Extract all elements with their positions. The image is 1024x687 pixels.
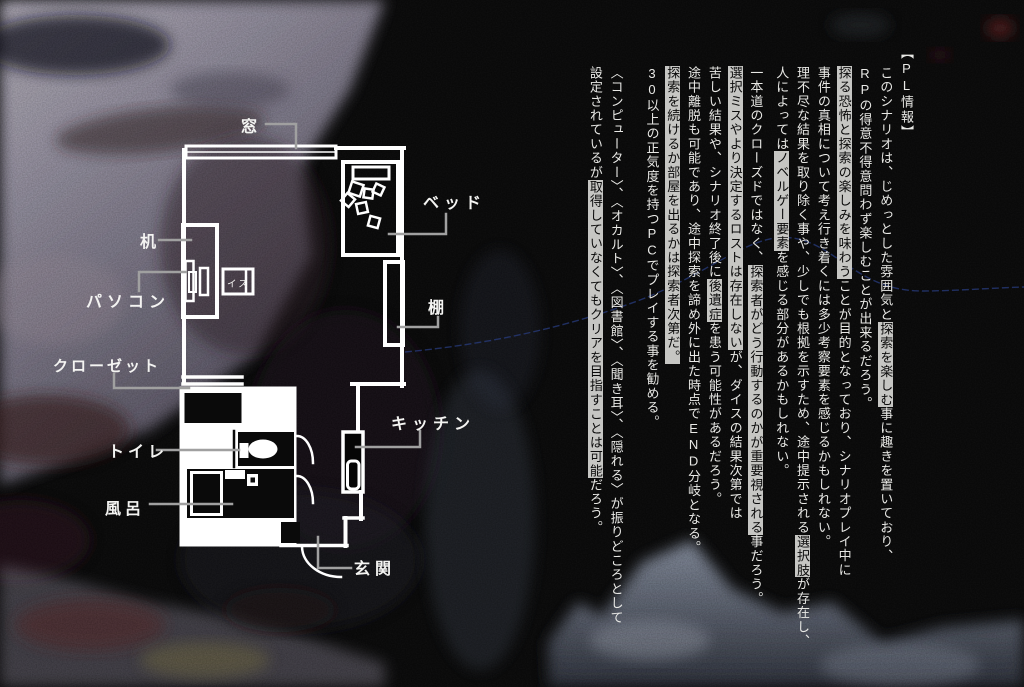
- pl-paragraph: 【PL情報】このシナリオは、じめっとした雰囲気と探索を楽しむ事に趣きを置いており…: [770, 46, 916, 646]
- text-column: 設定されているが取得していなくてもクリアを目指すことは可能だろう。: [584, 46, 605, 646]
- bath-faucet-inner: [251, 478, 256, 483]
- text-column: 理不尽な結果を取り除く事や、少しでも根拠を示すため、途中提示される選択肢が存在し…: [791, 46, 812, 646]
- pl-paragraph: 〈コンピューター〉、〈オカルト〉、〈図書館〉、〈聞き耳〉、〈隠れる〉が振りどころ…: [584, 46, 626, 646]
- text-segment: 30: [644, 66, 659, 98]
- text-segment: このシナリオは、じめっとした雰囲気と: [878, 66, 893, 322]
- label-bath: 風呂: [105, 500, 145, 518]
- text-segment: の得意不得意問わず楽しむことが出来るだろう。: [857, 98, 872, 410]
- highlighted-text: 選択ミスやより決定するロストは存在しない: [728, 66, 743, 350]
- label-pc: パソコン: [86, 293, 170, 311]
- label-shelf: 棚: [428, 298, 447, 317]
- text-segment: を患う可能性があるだろう。: [707, 322, 722, 507]
- text-segment: 以上の正気度を持つ: [644, 98, 659, 226]
- text-segment: END: [686, 421, 701, 470]
- entrance-step: [281, 522, 300, 543]
- text-segment: PC: [644, 226, 659, 258]
- label-closet: クローゼット: [53, 357, 161, 375]
- pl-paragraph: 一本道のクローズドではなく、探索者がどう行動するのかが重要視される事だろう。選択…: [641, 46, 766, 646]
- text-segment: ことが目的となっており、シナリオプレイ中に: [837, 279, 852, 577]
- text-column: 途中離脱も可能であり、途中探索を諦め外に出た時点でEND分岐となる。: [682, 46, 703, 646]
- scenario-page: 窓 ベッド 机 パソコン クローゼット トイレ 風呂 キッチン 玄関 棚 イス …: [0, 0, 1024, 687]
- text-segment: 苦しい結果や、シナリオ終了後に: [707, 66, 722, 279]
- text-column: 【PL情報】: [895, 46, 916, 646]
- highlighted-text: 取得していなくてもクリアを目指すことは可能: [588, 180, 603, 478]
- text-segment: 理不尽な結果を取り除く事や、少しでも根拠を示すため、途中提示される: [795, 66, 810, 535]
- highlighted-text: 探索者がどう行動するのかが重要視される: [748, 265, 763, 535]
- toilet-tank: [240, 443, 249, 458]
- text-segment: 設定されているが: [588, 66, 603, 180]
- text-segment: だろう。: [588, 478, 603, 535]
- text-column: 人によってはノベルゲー要素を感じる部分があるかもしれない。: [770, 46, 791, 646]
- text-column: 苦しい結果や、シナリオ終了後に後遺症を患う可能性があるだろう。: [703, 46, 724, 646]
- text-segment: を感じる部分があるかもしれない。: [774, 251, 789, 478]
- label-toilet: トイレ: [108, 444, 168, 461]
- text-column: RPの得意不得意問わず楽しむことが出来るだろう。: [854, 46, 875, 646]
- label-desk: 机: [140, 232, 159, 251]
- label-entrance: 玄関: [354, 559, 396, 578]
- text-segment: 途中離脱も可能であり、途中探索を諦め外に出た時点で: [686, 66, 701, 421]
- laundry-space: [185, 393, 242, 423]
- text-segment: が、ダイスの結果次第では: [728, 350, 743, 520]
- text-column: 〈コンピューター〉、〈オカルト〉、〈図書館〉、〈聞き耳〉、〈隠れる〉が振りどころ…: [605, 46, 626, 646]
- bath-counter: [225, 470, 245, 479]
- text-segment: 人によっては: [774, 66, 789, 151]
- text-column: 30以上の正気度を持つPCでプレイする事を勧める。: [641, 46, 662, 646]
- text-segment: 【: [899, 46, 914, 61]
- text-column: 選択ミスやより決定するロストは存在しないが、ダイスの結果次第では: [724, 46, 745, 646]
- text-segment: RP: [857, 66, 872, 98]
- text-segment: 〈コンピューター〉、〈オカルト〉、〈図書館〉、〈聞き耳〉、〈隠れる〉が振りどころ…: [609, 66, 624, 625]
- text-segment: 情報】: [899, 95, 914, 140]
- label-window: 窓: [241, 117, 260, 136]
- text-segment: でプレイする事を勧める。: [644, 259, 659, 429]
- highlighted-text: ノベルゲー要素: [774, 151, 789, 250]
- highlighted-text: 探索を楽しむ: [878, 322, 893, 407]
- text-segment: PL: [899, 61, 914, 95]
- text-segment: 分岐となる。: [686, 470, 701, 555]
- highlighted-text: 探索を続けるか部屋を出るかは探索者次第だ。: [665, 66, 680, 364]
- text-segment: 事件の真相について考え行き着くには多少考察要素を感じるかもしれない。: [816, 66, 831, 549]
- label-chair: イス: [227, 279, 250, 290]
- label-bed: ベッド: [423, 195, 486, 212]
- text-column: 探る恐怖と探索の楽しみを味わうことが目的となっており、シナリオプレイ中に: [833, 46, 854, 646]
- highlighted-text: 後遺症: [707, 279, 722, 322]
- pl-info-text: 【PL情報】このシナリオは、じめっとした雰囲気と探索を楽しむ事に趣きを置いており…: [584, 46, 916, 646]
- text-segment: 一本道のクローズドではなく、: [748, 66, 763, 265]
- text-column: このシナリオは、じめっとした雰囲気と探索を楽しむ事に趣きを置いており、: [874, 46, 895, 646]
- highlighted-text: 探る恐怖と探索の楽しみを味わう: [837, 66, 852, 279]
- text-column: 事件の真相について考え行き着くには多少考察要素を感じるかもしれない。: [812, 46, 833, 646]
- text-segment: が存在し、: [795, 577, 810, 648]
- text-column: 一本道のクローズドではなく、探索者がどう行動するのかが重要視される事だろう。: [745, 46, 766, 646]
- toilet-bowl: [249, 440, 278, 459]
- text-segment: 事だろう。: [748, 535, 763, 606]
- bathtub: [192, 473, 222, 515]
- highlighted-text: 選択肢: [795, 535, 810, 578]
- text-column: 探索を続けるか部屋を出るかは探索者次第だ。: [661, 46, 682, 646]
- label-kitchen: キッチン: [391, 416, 475, 433]
- text-segment: 事に趣きを置いており、: [878, 407, 893, 563]
